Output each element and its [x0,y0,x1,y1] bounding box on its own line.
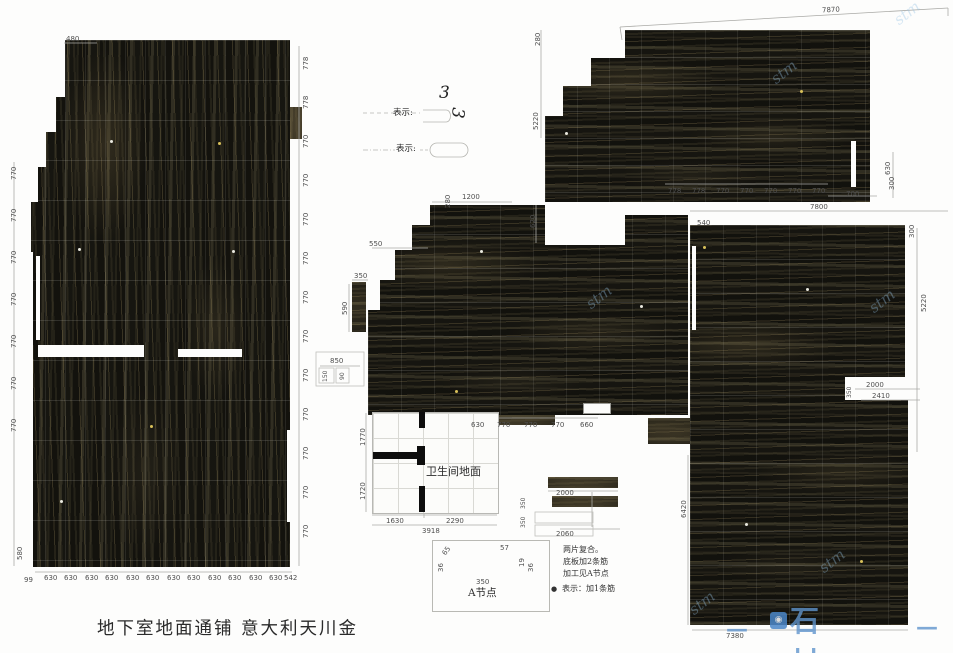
bathroom-label: 卫生间地面 [426,468,481,476]
dim-label: 90 [339,372,347,380]
gap-band [178,349,242,357]
dim-label: 590 [341,302,349,315]
dim-label: 630 [167,574,180,582]
dim-label: 770 [812,187,825,195]
dim-label: 770 [10,377,18,390]
dim-label: 770 [302,525,310,538]
legend-row1-label: 表示: [393,109,413,117]
rib-marker-dot [218,142,221,145]
note-bullet-text: 表示：加1条筋 [562,583,615,595]
dim-label: 700 [846,190,859,198]
dim-label: 770 [716,187,729,195]
dim-label: 7800 [810,203,828,211]
dim-label: 630 [126,574,139,582]
dim-label: 350 [354,272,367,280]
dim-label: 630 [884,162,892,175]
dim-label: 6420 [680,500,688,518]
rib-marker-dot [703,246,706,249]
wall-segment [417,446,425,465]
dim-label: 778 [692,187,705,195]
rib-marker-dot [860,560,863,563]
dim-label: 770 [302,408,310,421]
marble-panel-left [25,40,290,567]
rib-marker-dot [110,140,113,143]
dim-label: 770 [10,419,18,432]
dim-label: 630 [146,574,159,582]
dim-label: 36 [437,563,445,572]
gap-band [38,345,144,357]
rib-marker-dot [150,425,153,428]
dim-label: 1770 [359,428,367,446]
dim-label: 350 [476,578,489,586]
dim-label: 1720 [359,482,367,500]
dim-label: 770 [302,330,310,343]
dim-label: 550 [369,240,382,248]
dim-label: 36 [527,563,535,572]
watermark-dash: — [916,614,938,640]
dim-label: 770 [10,167,18,180]
marble-panel-top-right [545,30,870,202]
rib-marker-dot [455,390,458,393]
dim-label: 770 [302,447,310,460]
dim-label: 540 [697,219,710,227]
rib-marker-dot [640,305,643,308]
note-line: 两片复合。 [563,544,603,556]
rib-marker-dot [745,523,748,526]
dim-label: 630 [64,574,77,582]
brand-logo-icon: ◉ [770,612,787,629]
dim-label: 1200 [462,193,480,201]
dim-label: 280 [444,195,452,208]
rib-marker-dot [800,90,803,93]
wall-segment [373,452,421,459]
rib-marker-dot [232,250,235,253]
rib-marker-dot [565,132,568,135]
dim-label: 620 [529,215,537,228]
dim-label: 2060 [556,530,574,538]
drawing-sheet: 卫生间地面 A节点 表示: 表示: 3 3 480 99 580 770 770… [0,0,953,653]
watermark-dash: — [726,616,748,642]
note-line: 底板加2条筋 [563,556,608,568]
marble-center-bottom-chunk [648,418,690,444]
dim-label: 99 [24,576,33,584]
dim-label: 280 [534,33,542,46]
dim-label: 630 [208,574,221,582]
marble-strip-b [552,496,618,507]
sheet-title: 地下室地面通铺 意大利天川金 [97,615,358,640]
dim-label: 630 [105,574,118,582]
dim-label: 778 [302,96,310,109]
dim-label: 630 [187,574,200,582]
dim-label: 542 [284,574,297,582]
legend-mark-3: 3 [439,83,450,103]
dim-label: 850 [330,357,343,365]
dim-label: 770 [764,187,777,195]
dim-label: 2290 [446,517,464,525]
marble-panel-right [690,225,908,625]
dim-label: 300 [908,225,916,238]
dim-label: 19 [518,558,526,567]
dim-label: 630 [44,574,57,582]
dim-label: 3918 [422,527,440,535]
rib-marker-dot [480,250,483,253]
dim-label: 770 [524,421,537,429]
dim-label: 630 [249,574,262,582]
dim-label: 770 [10,293,18,306]
node-detail-label: A节点 [468,589,497,597]
dim-label: 770 [10,209,18,222]
wall-segment [419,486,425,512]
dim-label: 630 [269,574,282,582]
dim-label: 770 [302,369,310,382]
wall-segment [419,412,425,428]
marble-strip-a [548,477,618,488]
dim-label: 770 [10,251,18,264]
dim-label: 350 [846,387,854,398]
dim-label: 5220 [532,112,540,130]
dim-label: 778 [302,57,310,70]
brand-text: 石材精灵 [790,598,821,653]
dim-label: 770 [10,335,18,348]
dim-label: 778 [668,187,681,195]
rib-marker-dot [78,248,81,251]
gap-strip [36,256,40,340]
marble-panel-left-bump [290,107,302,139]
dim-label: 770 [497,421,510,429]
dim-label: 2000 [556,489,574,497]
dim-label: 300 [888,177,896,190]
dim-label: 770 [788,187,801,195]
dim-label: 2000 [866,381,884,389]
dim-label: 150 [322,371,330,382]
dim-label: 630 [85,574,98,582]
dim-label: 480 [66,35,79,43]
dim-label: 770 [302,252,310,265]
stm-watermark: stm [890,0,923,29]
rib-marker-dot [60,500,63,503]
tile-joints [25,40,290,567]
dim-label: 1630 [386,517,404,525]
dim-label: 350 [520,498,528,509]
gap-strip [287,430,291,522]
small-tag-box [583,403,611,414]
note-line: 加工见A节点 [563,568,609,580]
dim-label: 580 [16,547,24,560]
dim-label: 770 [302,486,310,499]
dim-label: 7870 [822,6,840,15]
dim-label: 770 [302,213,310,226]
legend-mark-3-rotated: 3 [447,107,468,120]
gap-strip [692,246,696,330]
marble-strip-small [352,282,366,332]
dim-label: 770 [551,421,564,429]
gap-strip [851,141,856,187]
rib-marker-dot [806,288,809,291]
note-bullet: ● [551,584,557,596]
dim-label: 57 [500,544,509,552]
dim-label: 5220 [920,294,928,312]
dim-label: 660 [580,421,593,429]
dim-label: 630 [228,574,241,582]
dim-label: 630 [471,421,484,429]
tile-joints [545,30,870,202]
dim-label: 350 [520,517,528,528]
legend-row2-label: 表示: [396,145,416,153]
dim-label: 770 [302,174,310,187]
dim-label: 770 [740,187,753,195]
dim-label: 770 [302,291,310,304]
dim-label: 770 [302,135,310,148]
dim-label: 2410 [872,392,890,400]
tile-joints [690,225,908,625]
